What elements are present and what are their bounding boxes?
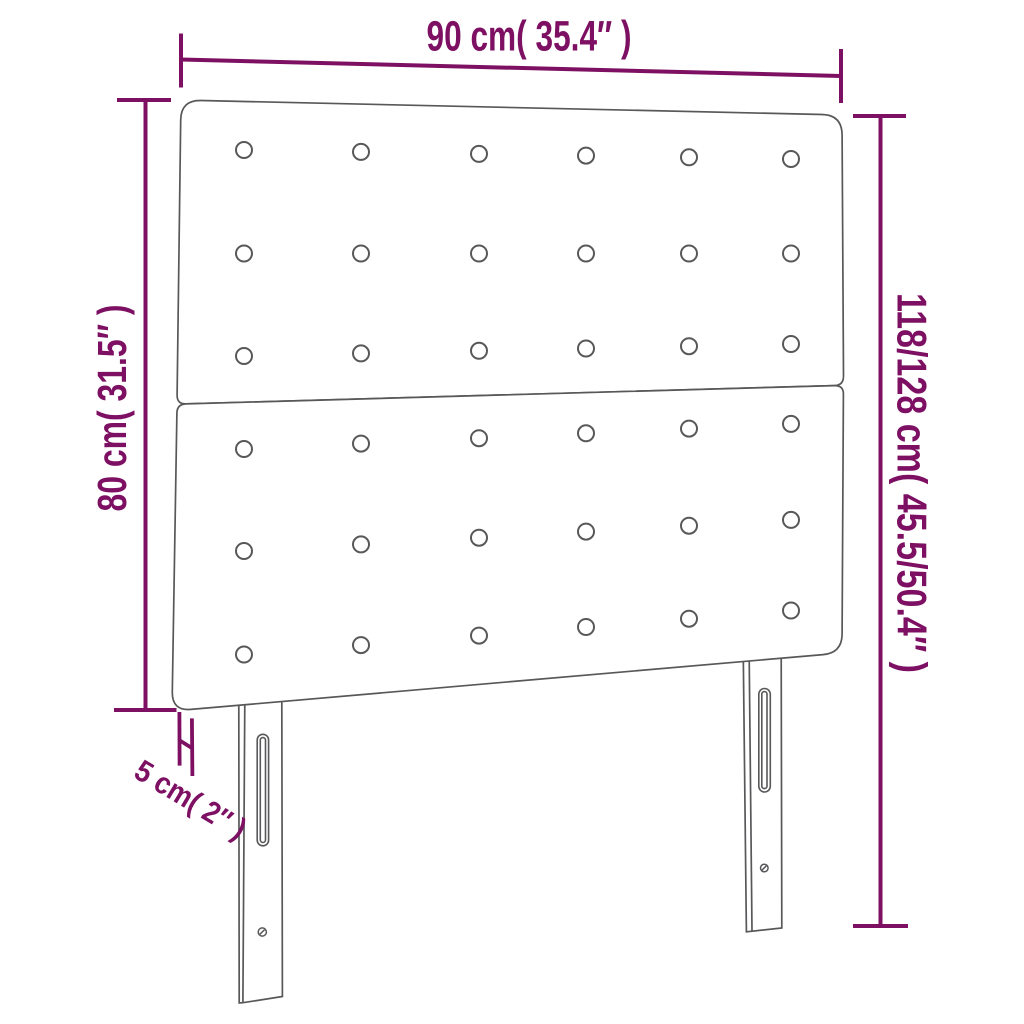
svg-text:80 cm( 31.5″ ): 80 cm( 31.5″ )	[89, 305, 135, 512]
svg-text:118/128 cm( 45.5/50.4″ ): 118/128 cm( 45.5/50.4″ )	[889, 293, 936, 673]
svg-text:90 cm( 35.4″ ): 90 cm( 35.4″ )	[427, 13, 632, 60]
